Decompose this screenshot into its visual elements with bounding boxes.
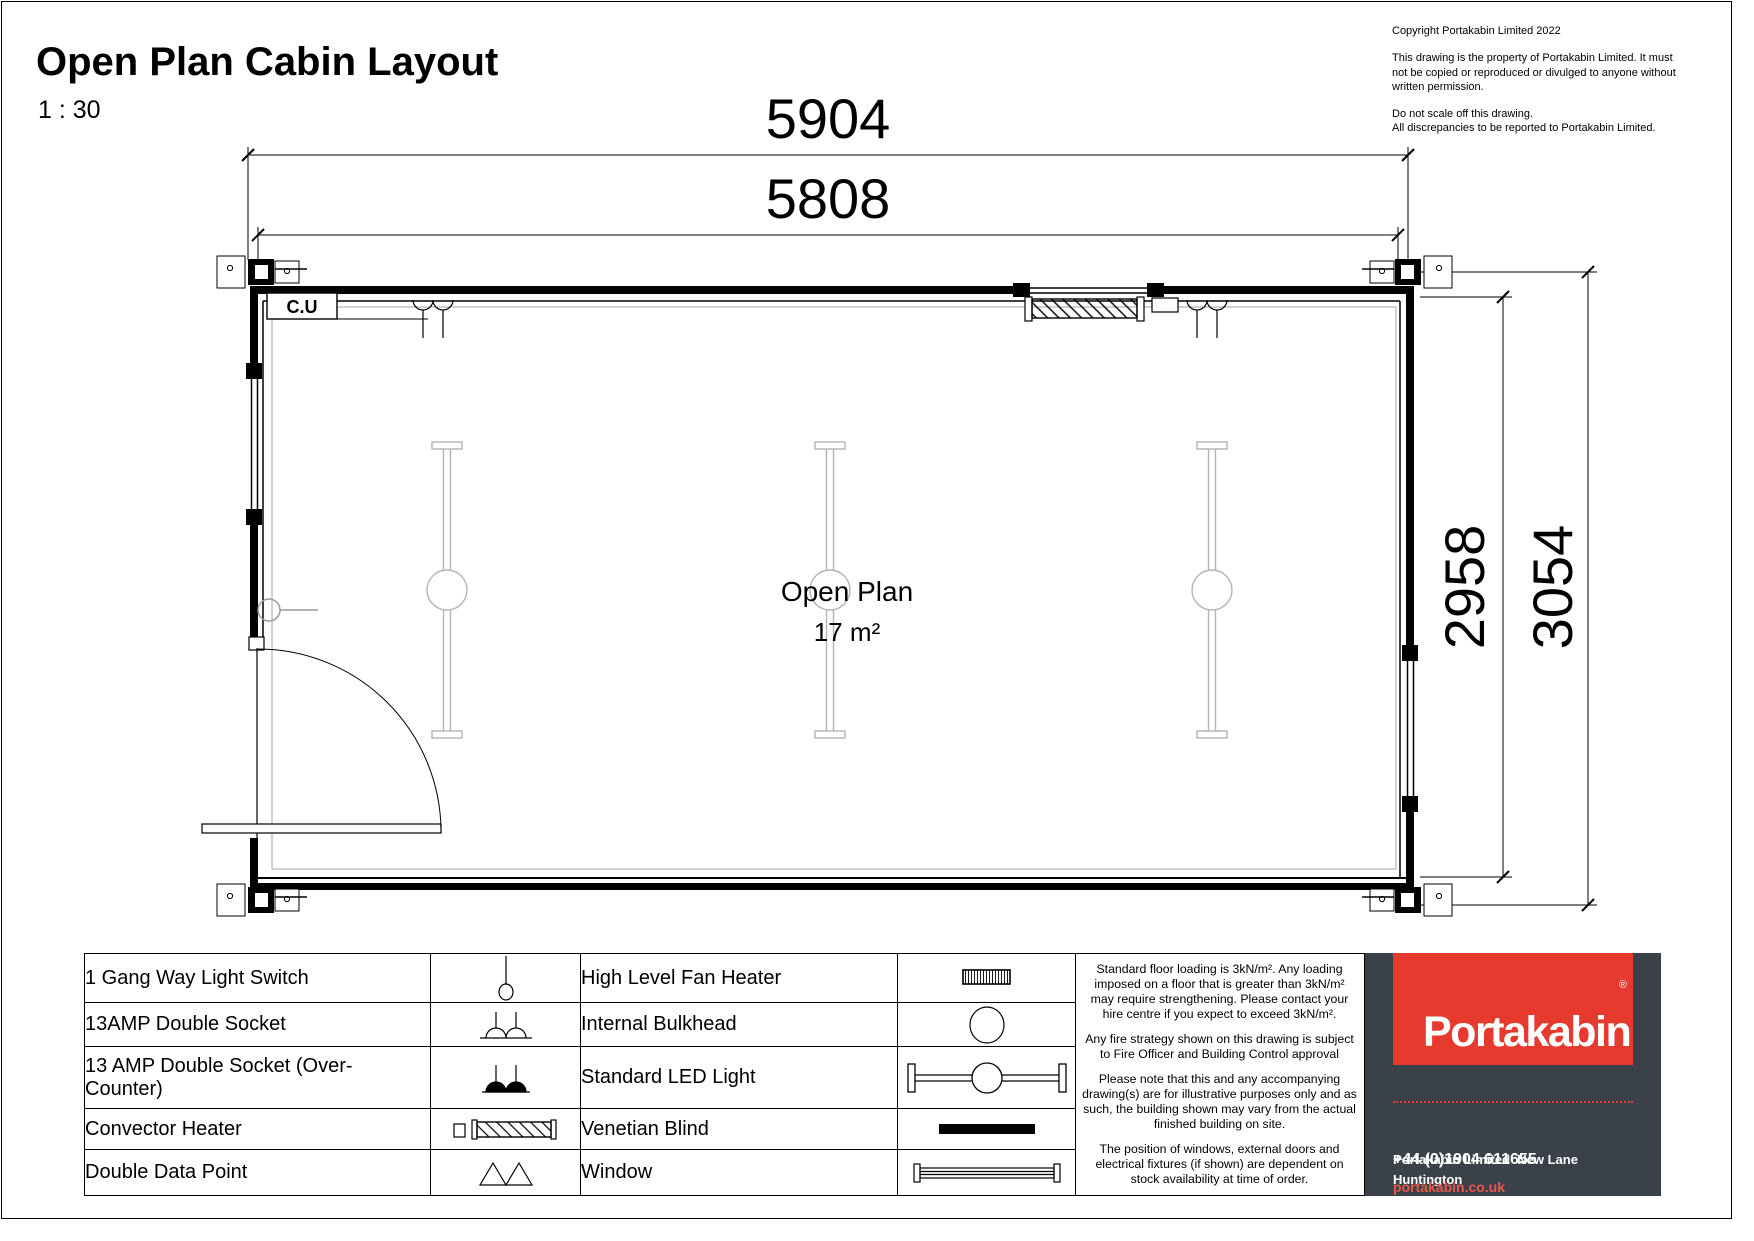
registered-mark: ® <box>1619 979 1627 991</box>
dim-right-outer: 3054 <box>1521 525 1584 650</box>
floor-plan: 5904 5808 2958 3054 <box>0 0 1754 952</box>
legend-label: Window <box>581 1150 898 1196</box>
company-address: Portakabin Limited New Lane Huntington Y… <box>1393 1110 1649 1241</box>
legend-label: High Level Fan Heater <box>581 954 898 1003</box>
window-icon <box>912 1161 1062 1185</box>
corner-post-top-right <box>1362 256 1452 288</box>
dim-right-inner: 2958 <box>1433 525 1496 650</box>
legend-label: 1 Gang Way Light Switch <box>85 954 431 1003</box>
legend-label: Venetian Blind <box>581 1109 898 1150</box>
led-light-icon <box>906 1056 1068 1100</box>
dotted-divider <box>1393 1101 1633 1103</box>
dim-top-outer: 5904 <box>766 87 891 150</box>
legend-label: Convector Heater <box>85 1109 431 1150</box>
led-light-1 <box>427 442 467 738</box>
corner-post-top-left <box>217 256 307 288</box>
legend-label: Double Data Point <box>85 1150 431 1196</box>
brand-panel: Portakabin ® Portakabin Limited New Lane… <box>1365 953 1661 1196</box>
note-fire-strategy: Any fire strategy shown on this drawing … <box>1082 1032 1357 1062</box>
pendant-light-switch-icon <box>491 955 521 1001</box>
address-line-2: York YO32 9PT United Kingdom <box>1393 1231 1649 1241</box>
legend-label: Standard LED Light <box>581 1047 898 1109</box>
light-switch-symbol <box>258 599 318 621</box>
legend-label: 13 AMP Double Socket (Over-Counter) <box>85 1047 431 1109</box>
consumer-unit-label: C.U <box>287 297 318 317</box>
website-link[interactable]: portakabin.co.uk <box>1393 1179 1505 1195</box>
room-label: Open Plan <box>781 576 913 607</box>
double-data-point-icon <box>474 1158 538 1188</box>
note-floor-loading: Standard floor loading is 3kN/m². Any lo… <box>1082 962 1357 1022</box>
venetian-blind-symbol <box>1025 297 1144 321</box>
bulkhead-circle-icon <box>961 1005 1013 1045</box>
convector-heater-icon <box>450 1115 562 1143</box>
drawing-sheet: Open Plan Cabin Layout 1 : 30 Copyright … <box>0 0 1754 1241</box>
consumer-unit: C.U <box>267 293 428 319</box>
corner-post-bottom-left <box>217 884 307 916</box>
dim-top-inner: 5808 <box>766 167 891 230</box>
table-row: 13 AMP Double Socket (Over-Counter) Stan… <box>85 1047 1076 1109</box>
door <box>202 648 441 842</box>
fan-heater-icon <box>961 968 1013 988</box>
note-illustrative: Please note that this and any accompanyi… <box>1082 1072 1357 1132</box>
portakabin-wordmark: Portakabin <box>1423 1008 1630 1057</box>
led-light-3 <box>1192 442 1232 738</box>
portakabin-logo: Portakabin ® <box>1393 953 1633 1065</box>
double-socket-filled-icon <box>474 1058 538 1098</box>
room-area: 17 m² <box>814 617 881 647</box>
double-socket-symbol-right <box>1187 300 1227 338</box>
table-row: 13AMP Double Socket Internal Bulkhead <box>85 1003 1076 1047</box>
notes-panel: Standard floor loading is 3kN/m². Any lo… <box>1075 953 1365 1196</box>
fan-heater-symbol <box>1152 298 1178 312</box>
corner-post-bottom-right <box>1362 884 1452 916</box>
table-row: Double Data Point Window <box>85 1150 1076 1196</box>
venetian-blind-icon <box>937 1122 1037 1136</box>
table-row: Convector Heater Venetian Blind <box>85 1109 1076 1150</box>
legend-label: 13AMP Double Socket <box>85 1003 431 1047</box>
note-stock: The position of windows, external doors … <box>1082 1142 1357 1187</box>
legend-table: 1 Gang Way Light Switch High Level Fan H… <box>84 953 1076 1196</box>
legend-label: Internal Bulkhead <box>581 1003 898 1047</box>
phone-number: +44 (0)1904 611655 <box>1393 1151 1537 1169</box>
double-socket-icon <box>474 1006 538 1044</box>
table-row: 1 Gang Way Light Switch High Level Fan H… <box>85 954 1076 1003</box>
